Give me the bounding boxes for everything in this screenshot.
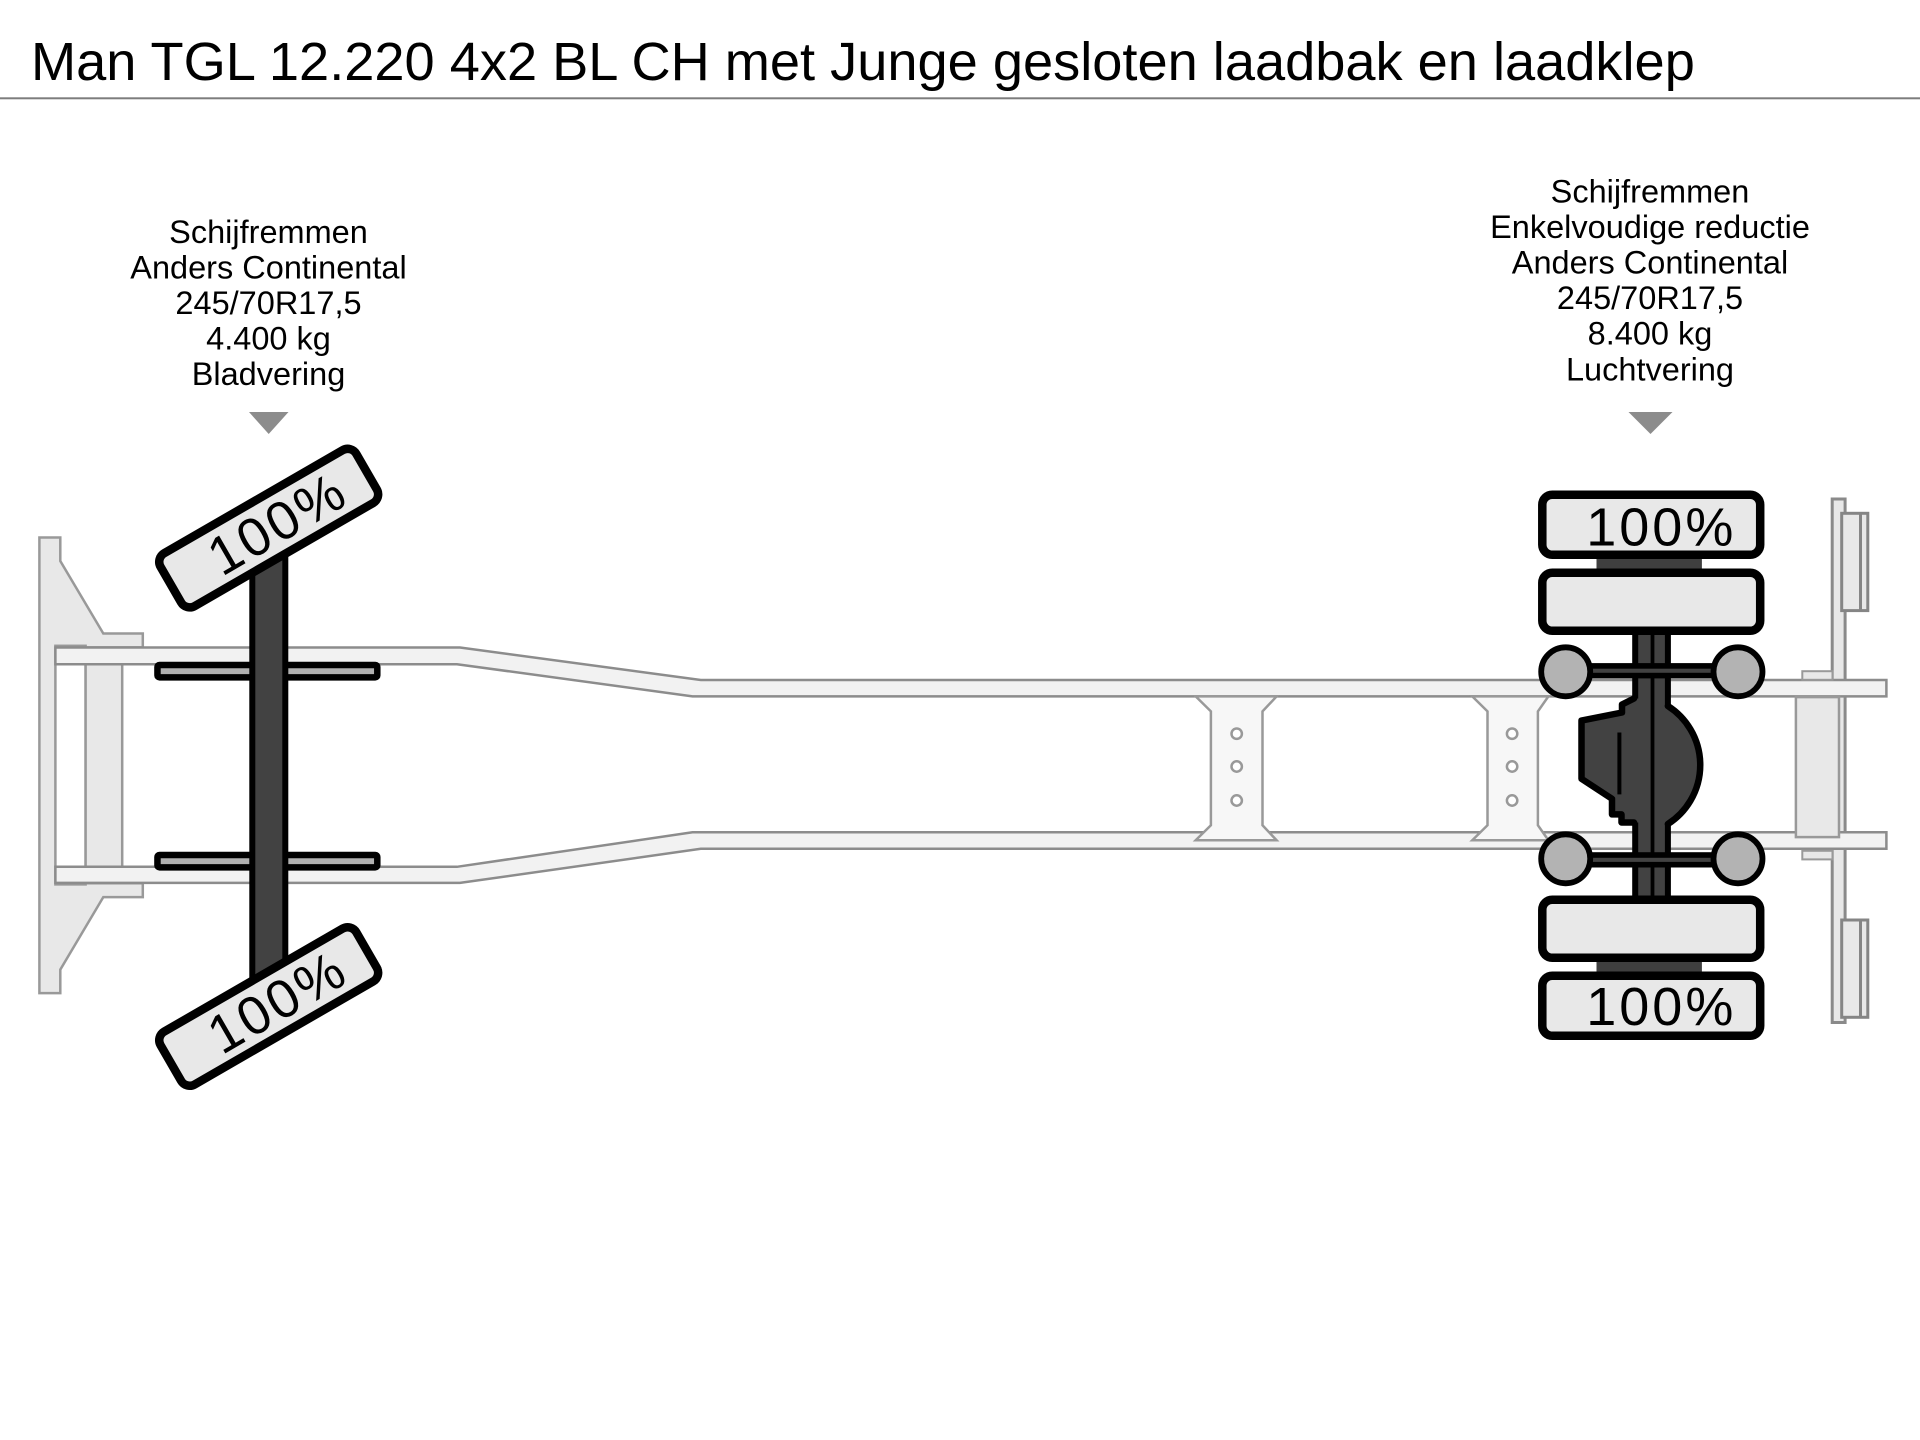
svg-text:4.400 kg: 4.400 kg	[206, 321, 331, 357]
svg-text:Anders Continental: Anders Continental	[1512, 245, 1788, 281]
svg-text:Man TGL 12.220 4x2 BL CH met J: Man TGL 12.220 4x2 BL CH met Junge geslo…	[31, 32, 1695, 92]
svg-text:245/70R17,5: 245/70R17,5	[1557, 280, 1743, 316]
svg-text:Schijfremmen: Schijfremmen	[169, 214, 368, 250]
svg-text:100%: 100%	[1586, 977, 1736, 1037]
svg-text:Enkelvoudige reductie: Enkelvoudige reductie	[1490, 209, 1810, 245]
svg-text:245/70R17,5: 245/70R17,5	[175, 285, 361, 321]
svg-text:100%: 100%	[1586, 498, 1736, 558]
svg-text:8.400 kg: 8.400 kg	[1588, 316, 1713, 352]
svg-text:Anders Continental: Anders Continental	[130, 250, 406, 286]
svg-text:Luchtvering: Luchtvering	[1566, 351, 1734, 387]
svg-text:Schijfremmen: Schijfremmen	[1551, 173, 1750, 209]
svg-text:Bladvering: Bladvering	[192, 356, 346, 392]
